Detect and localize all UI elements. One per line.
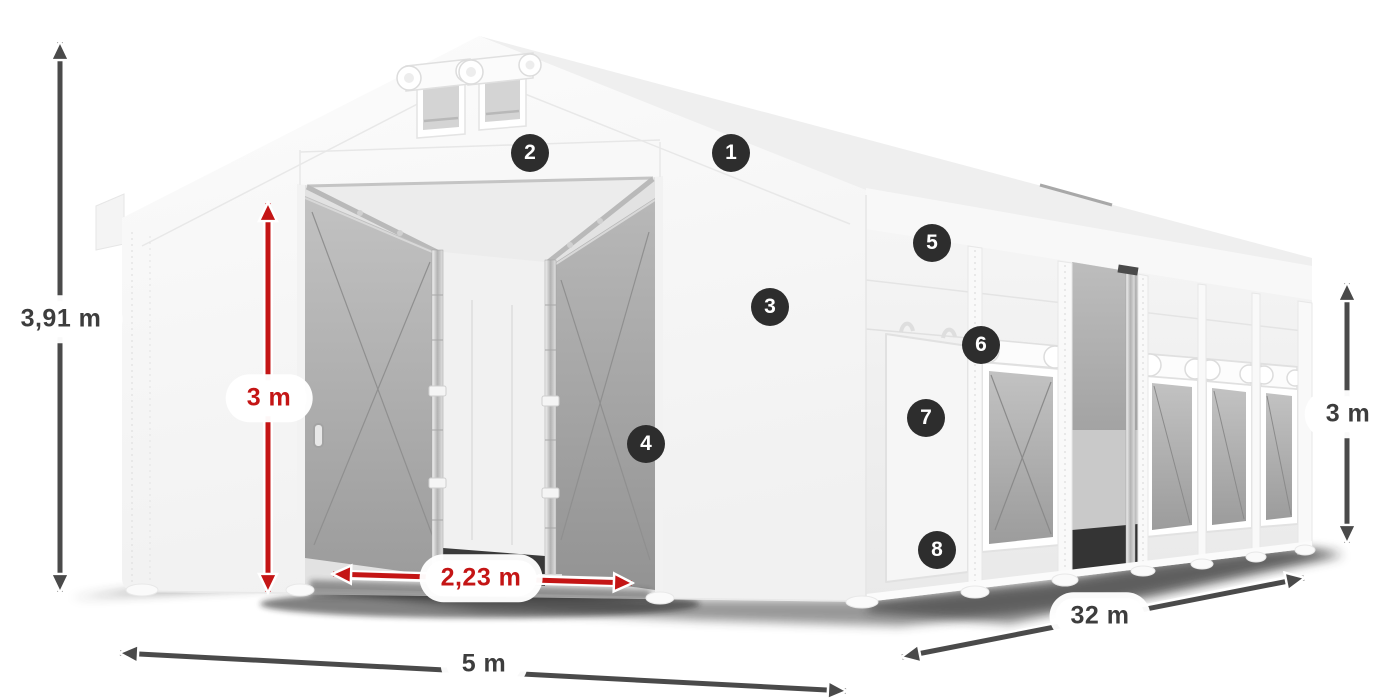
- door-handle: [314, 424, 323, 447]
- callout-2: 2: [511, 134, 549, 172]
- product-diagram: 3,91 m 3 m 2,23 m 5 m 32 m 3 m 1 2 3 4 5…: [0, 0, 1400, 700]
- callout-4: 4: [627, 425, 665, 463]
- front-doors: [297, 142, 663, 601]
- callout-5: 5: [913, 224, 951, 262]
- callout-8: 8: [918, 531, 956, 569]
- dimension-label-side-height: 3 m: [1311, 396, 1386, 432]
- callout-6: 6: [962, 326, 1000, 364]
- dimension-label-total-height: 3,91 m: [6, 301, 117, 337]
- dimension-label-front-width: 5 m: [447, 646, 522, 682]
- open-bay: [1072, 262, 1139, 577]
- side-window-2: [1139, 354, 1205, 537]
- dimension-label-side-length: 32 m: [1056, 598, 1145, 634]
- callout-1: 1: [712, 134, 750, 172]
- dimension-label-door-height: 3 m: [232, 380, 307, 416]
- dimension-label-door-width: 2,23 m: [426, 560, 537, 596]
- callout-7: 7: [907, 399, 945, 437]
- side-window-3: [1200, 359, 1258, 532]
- side-window-4: [1255, 364, 1303, 527]
- callout-3: 3: [751, 288, 789, 326]
- tent-illustration: [0, 0, 1400, 700]
- side-window-1: [975, 339, 1066, 552]
